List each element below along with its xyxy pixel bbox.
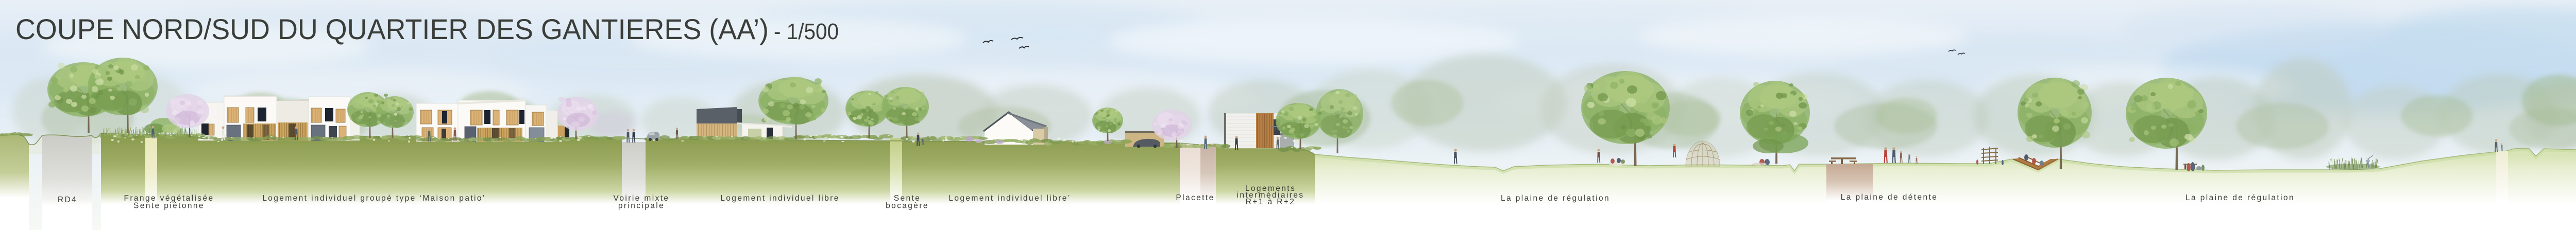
svg-text:bocagère: bocagère [886, 202, 929, 210]
svg-text:Placette: Placette [1176, 193, 1214, 202]
svg-text:Logement individuel libre: Logement individuel libre [720, 194, 839, 203]
svg-text:La plaine de détente: La plaine de détente [1841, 193, 1938, 202]
svg-text:principale: principale [618, 202, 665, 210]
svg-text:COUPE NORD/SUD DU QUARTIER DES: COUPE NORD/SUD DU QUARTIER DES GANTIERES… [15, 13, 769, 45]
svg-text:La plaine de régulation: La plaine de régulation [2185, 193, 2295, 202]
svg-text:RD4: RD4 [58, 196, 77, 204]
svg-text:Logement individuel groupé typ: Logement individuel groupé type ‘Maison … [262, 194, 486, 203]
svg-text:- 1/500: - 1/500 [774, 19, 839, 44]
svg-text:Sente piétonne: Sente piétonne [133, 202, 205, 210]
svg-text:La plaine de régulation: La plaine de régulation [1501, 194, 1610, 203]
svg-text:R+1 à R+2: R+1 à R+2 [1246, 198, 1296, 206]
svg-text:Logement individuel libre’: Logement individuel libre’ [948, 194, 1071, 203]
